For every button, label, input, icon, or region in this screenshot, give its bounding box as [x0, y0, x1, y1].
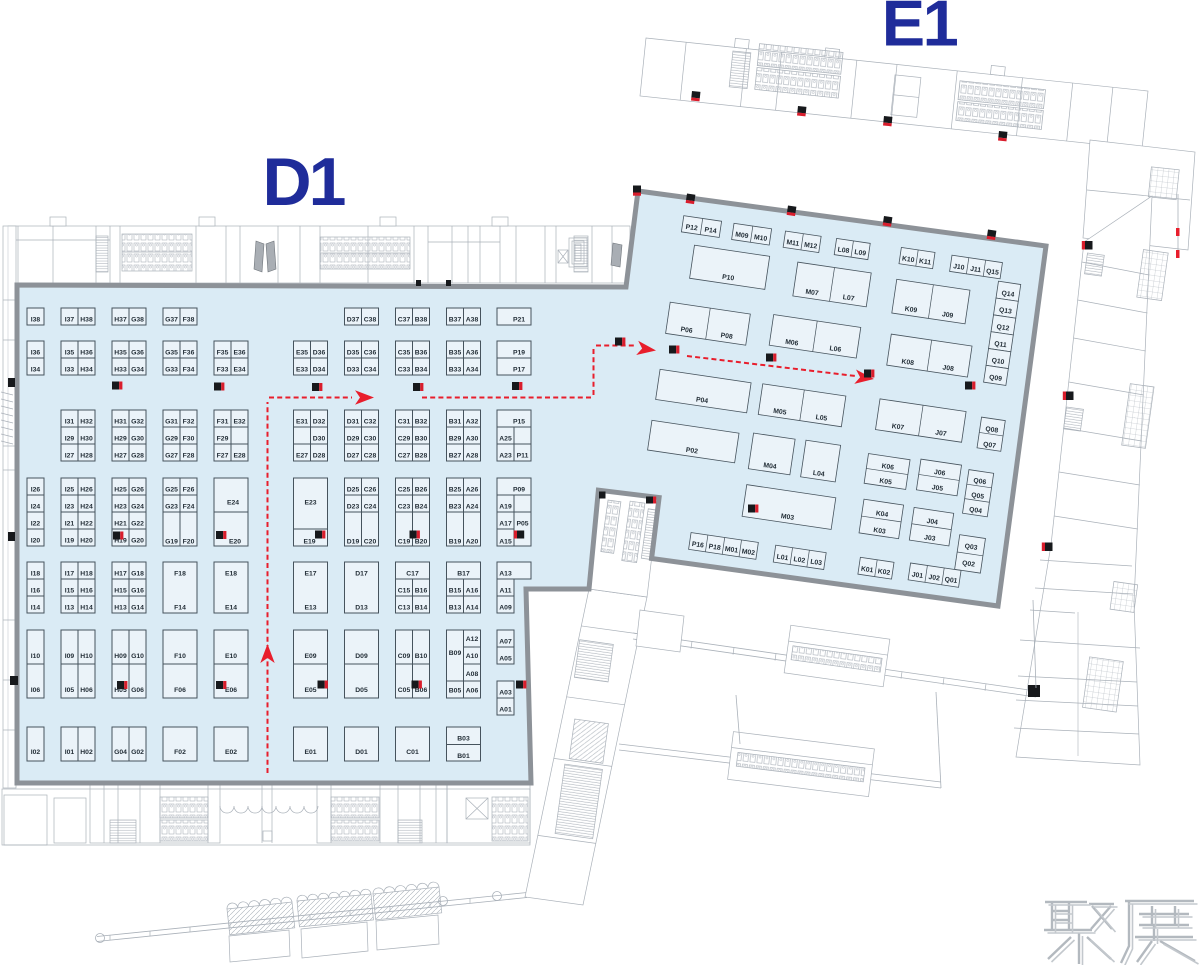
- svg-text:G24: G24: [131, 503, 144, 510]
- svg-text:A11: A11: [499, 587, 511, 594]
- svg-text:C36: C36: [364, 349, 377, 356]
- svg-text:F14: F14: [174, 604, 186, 611]
- svg-text:E23: E23: [304, 499, 316, 506]
- svg-text:D09: D09: [355, 653, 368, 660]
- svg-text:C19: C19: [398, 538, 411, 545]
- svg-text:G14: G14: [131, 604, 144, 611]
- svg-text:G36: G36: [131, 349, 144, 356]
- svg-text:C05: C05: [398, 687, 411, 694]
- svg-text:G16: G16: [131, 587, 144, 594]
- svg-text:H31: H31: [114, 418, 127, 425]
- svg-text:B17: B17: [457, 570, 470, 577]
- svg-text:I38: I38: [31, 316, 41, 323]
- svg-text:H32: H32: [80, 418, 93, 425]
- svg-text:A24: A24: [466, 503, 479, 510]
- svg-text:E19: E19: [303, 538, 315, 545]
- svg-text:E09: E09: [304, 653, 316, 660]
- svg-text:E06: E06: [225, 687, 237, 694]
- svg-text:B13: B13: [449, 604, 462, 611]
- svg-text:F31: F31: [217, 418, 229, 425]
- svg-text:C35: C35: [398, 349, 411, 356]
- svg-text:A28: A28: [466, 452, 479, 459]
- svg-text:H10: H10: [80, 653, 93, 660]
- svg-text:B38: B38: [415, 316, 428, 323]
- svg-text:H16: H16: [80, 587, 93, 594]
- svg-text:F24: F24: [183, 503, 195, 510]
- svg-text:H21: H21: [114, 520, 127, 527]
- svg-text:F29: F29: [217, 435, 229, 442]
- svg-text:G32: G32: [131, 418, 144, 425]
- svg-text:F28: F28: [183, 452, 195, 459]
- svg-text:B36: B36: [415, 349, 428, 356]
- svg-text:I18: I18: [31, 570, 41, 577]
- svg-text:E24: E24: [227, 499, 239, 506]
- svg-text:G37: G37: [165, 316, 178, 323]
- svg-text:B03: B03: [457, 736, 470, 743]
- svg-text:H02: H02: [80, 749, 93, 756]
- svg-text:G34: G34: [131, 366, 144, 373]
- svg-text:C26: C26: [364, 486, 377, 493]
- svg-text:I34: I34: [31, 366, 41, 373]
- svg-text:G25: G25: [165, 486, 178, 493]
- svg-text:H33: H33: [114, 366, 127, 373]
- svg-text:D13: D13: [355, 604, 368, 611]
- svg-text:A07: A07: [499, 638, 512, 645]
- svg-text:H20: H20: [80, 537, 93, 544]
- svg-text:B16: B16: [415, 587, 428, 594]
- svg-text:D35: D35: [347, 349, 360, 356]
- svg-text:G33: G33: [165, 366, 178, 373]
- svg-text:A14: A14: [466, 604, 479, 611]
- svg-text:C01: C01: [406, 749, 419, 756]
- svg-text:B01: B01: [457, 753, 470, 760]
- svg-text:H36: H36: [80, 349, 93, 356]
- svg-text:E18: E18: [225, 570, 237, 577]
- svg-text:I23: I23: [65, 503, 75, 510]
- svg-text:H18: H18: [80, 570, 93, 577]
- svg-text:G19: G19: [165, 538, 178, 545]
- svg-text:A25: A25: [499, 435, 512, 442]
- svg-text:P15: P15: [513, 418, 525, 425]
- svg-text:C33: C33: [398, 366, 411, 373]
- svg-text:E10: E10: [225, 653, 237, 660]
- svg-text:A16: A16: [466, 587, 479, 594]
- svg-text:F30: F30: [183, 435, 195, 442]
- svg-text:D1: D1: [263, 144, 345, 220]
- svg-text:E28: E28: [233, 452, 245, 459]
- svg-text:I37: I37: [65, 316, 75, 323]
- svg-text:E01: E01: [304, 749, 316, 756]
- svg-text:H23: H23: [114, 503, 127, 510]
- svg-text:C23: C23: [398, 503, 411, 510]
- svg-text:G20: G20: [131, 537, 144, 544]
- svg-text:G18: G18: [131, 570, 144, 577]
- svg-text:B23: B23: [449, 503, 462, 510]
- svg-text:H28: H28: [80, 452, 93, 459]
- svg-text:H30: H30: [80, 435, 93, 442]
- svg-text:P19: P19: [513, 349, 525, 356]
- svg-text:D01: D01: [355, 749, 368, 756]
- svg-text:E27: E27: [296, 452, 308, 459]
- svg-text:D30: D30: [313, 435, 326, 442]
- svg-text:D29: D29: [347, 435, 360, 442]
- svg-text:A15: A15: [499, 538, 512, 545]
- svg-text:A05: A05: [499, 655, 512, 662]
- svg-text:B27: B27: [449, 452, 462, 459]
- svg-text:H29: H29: [114, 435, 127, 442]
- svg-text:H24: H24: [80, 503, 93, 510]
- svg-text:A19: A19: [499, 503, 512, 510]
- svg-text:B25: B25: [449, 486, 462, 493]
- svg-text:D05: D05: [355, 687, 368, 694]
- svg-text:P11: P11: [517, 452, 529, 459]
- svg-text:I14: I14: [31, 604, 41, 611]
- svg-text:C38: C38: [364, 316, 377, 323]
- svg-text:B30: B30: [415, 435, 428, 442]
- svg-text:G38: G38: [131, 316, 144, 323]
- svg-text:B09: B09: [449, 650, 462, 657]
- svg-text:D36: D36: [313, 349, 326, 356]
- svg-text:A03: A03: [499, 689, 512, 696]
- svg-text:H15: H15: [114, 587, 127, 594]
- svg-text:H14: H14: [80, 604, 93, 611]
- svg-text:F10: F10: [174, 653, 186, 660]
- svg-text:D33: D33: [347, 366, 360, 373]
- svg-text:G28: G28: [131, 452, 144, 459]
- svg-text:A13: A13: [499, 570, 512, 577]
- svg-text:C13: C13: [398, 604, 411, 611]
- svg-text:B05: B05: [449, 688, 462, 695]
- svg-text:I21: I21: [65, 520, 75, 527]
- svg-text:H09: H09: [114, 653, 127, 660]
- svg-text:B35: B35: [449, 349, 462, 356]
- svg-text:A10: A10: [466, 653, 479, 660]
- svg-text:P09: P09: [513, 486, 525, 493]
- svg-text:D25: D25: [347, 486, 360, 493]
- svg-text:E17: E17: [304, 570, 316, 577]
- svg-text:C17: C17: [406, 570, 419, 577]
- svg-text:A34: A34: [466, 366, 479, 373]
- svg-text:H27: H27: [114, 452, 127, 459]
- svg-text:I10: I10: [31, 653, 41, 660]
- svg-text:F20: F20: [183, 538, 195, 545]
- svg-text:B34: B34: [415, 366, 428, 373]
- svg-text:I16: I16: [31, 587, 41, 594]
- svg-text:B24: B24: [415, 503, 428, 510]
- svg-text:B20: B20: [415, 538, 428, 545]
- svg-text:H25: H25: [114, 486, 127, 493]
- svg-text:I36: I36: [31, 349, 41, 356]
- svg-text:A23: A23: [499, 452, 512, 459]
- svg-text:I13: I13: [65, 604, 75, 611]
- svg-text:I20: I20: [31, 537, 41, 544]
- svg-text:A30: A30: [466, 435, 479, 442]
- svg-text:D27: D27: [347, 452, 360, 459]
- svg-text:H06: H06: [80, 687, 93, 694]
- svg-text:B33: B33: [449, 366, 462, 373]
- svg-text:B15: B15: [449, 587, 462, 594]
- svg-text:E05: E05: [304, 687, 316, 694]
- svg-text:G04: G04: [114, 749, 127, 756]
- svg-text:G23: G23: [165, 503, 178, 510]
- svg-text:I24: I24: [31, 503, 41, 510]
- svg-text:I09: I09: [65, 653, 75, 660]
- svg-text:H34: H34: [80, 366, 93, 373]
- svg-text:F36: F36: [183, 349, 195, 356]
- svg-text:G29: G29: [165, 435, 178, 442]
- svg-text:A09: A09: [499, 604, 512, 611]
- svg-text:C31: C31: [398, 418, 411, 425]
- svg-text:G27: G27: [165, 452, 178, 459]
- svg-text:C09: C09: [398, 653, 411, 660]
- svg-text:G35: G35: [165, 349, 178, 356]
- svg-text:C30: C30: [364, 435, 377, 442]
- svg-text:E34: E34: [233, 366, 245, 373]
- svg-text:D31: D31: [347, 418, 360, 425]
- svg-text:B29: B29: [449, 435, 462, 442]
- svg-text:E1: E1: [882, 0, 958, 60]
- svg-text:I26: I26: [31, 486, 41, 493]
- svg-text:F34: F34: [183, 366, 195, 373]
- svg-text:H37: H37: [114, 316, 127, 323]
- svg-text:B32: B32: [415, 418, 428, 425]
- svg-text:E35: E35: [296, 349, 308, 356]
- svg-text:I01: I01: [65, 749, 75, 756]
- svg-text:B14: B14: [415, 604, 428, 611]
- svg-text:G06: G06: [131, 687, 144, 694]
- svg-text:D23: D23: [347, 503, 360, 510]
- svg-text:A26: A26: [466, 486, 479, 493]
- svg-text:G10: G10: [131, 653, 144, 660]
- svg-text:H22: H22: [80, 520, 93, 527]
- svg-text:G30: G30: [131, 435, 144, 442]
- svg-text:B19: B19: [449, 538, 462, 545]
- svg-text:H13: H13: [114, 604, 127, 611]
- svg-text:A17: A17: [499, 520, 512, 527]
- svg-text:F26: F26: [183, 486, 195, 493]
- svg-text:C27: C27: [398, 452, 411, 459]
- svg-text:I31: I31: [65, 418, 75, 425]
- svg-text:A06: A06: [466, 688, 479, 695]
- svg-text:F02: F02: [174, 749, 186, 756]
- svg-text:E32: E32: [233, 418, 245, 425]
- svg-text:D34: D34: [313, 366, 326, 373]
- svg-text:B37: B37: [449, 316, 462, 323]
- svg-text:I15: I15: [65, 587, 75, 594]
- svg-text:I25: I25: [65, 486, 75, 493]
- svg-text:B10: B10: [415, 653, 428, 660]
- svg-text:E36: E36: [233, 349, 245, 356]
- svg-text:C37: C37: [398, 316, 411, 323]
- svg-text:E20: E20: [229, 538, 241, 545]
- svg-text:I35: I35: [65, 349, 75, 356]
- svg-text:H35: H35: [114, 349, 127, 356]
- svg-text:G22: G22: [131, 520, 144, 527]
- svg-text:I02: I02: [31, 749, 41, 756]
- svg-text:D28: D28: [313, 452, 326, 459]
- svg-text:B28: B28: [415, 452, 428, 459]
- svg-text:H26: H26: [80, 486, 93, 493]
- svg-text:B31: B31: [449, 418, 462, 425]
- svg-text:I06: I06: [31, 687, 41, 694]
- svg-text:D17: D17: [355, 570, 368, 577]
- svg-text:A32: A32: [466, 418, 479, 425]
- svg-text:A20: A20: [466, 538, 479, 545]
- svg-text:I29: I29: [65, 435, 75, 442]
- svg-text:A38: A38: [466, 316, 479, 323]
- svg-text:I27: I27: [65, 452, 75, 459]
- svg-text:G02: G02: [131, 749, 144, 756]
- svg-text:C32: C32: [364, 418, 377, 425]
- svg-text:E14: E14: [225, 604, 237, 611]
- svg-text:H38: H38: [80, 316, 93, 323]
- svg-text:I22: I22: [31, 520, 41, 527]
- svg-text:C15: C15: [398, 587, 411, 594]
- svg-text:P05: P05: [516, 520, 528, 527]
- svg-text:B26: B26: [415, 486, 428, 493]
- svg-text:C25: C25: [398, 486, 411, 493]
- svg-text:P21: P21: [513, 316, 525, 323]
- svg-text:G26: G26: [131, 486, 144, 493]
- svg-text:D32: D32: [313, 418, 326, 425]
- svg-text:C24: C24: [364, 503, 377, 510]
- svg-text:F32: F32: [183, 418, 195, 425]
- svg-text:I17: I17: [65, 570, 75, 577]
- svg-text:F33: F33: [217, 366, 229, 373]
- svg-text:E31: E31: [296, 418, 308, 425]
- svg-text:E13: E13: [304, 604, 316, 611]
- svg-text:F38: F38: [183, 316, 195, 323]
- svg-text:A36: A36: [466, 349, 479, 356]
- svg-text:G31: G31: [165, 418, 178, 425]
- svg-text:F27: F27: [217, 452, 229, 459]
- svg-text:E33: E33: [296, 366, 308, 373]
- svg-text:C29: C29: [398, 435, 411, 442]
- svg-text:I19: I19: [65, 537, 75, 544]
- svg-text:D37: D37: [347, 316, 360, 323]
- svg-text:D19: D19: [347, 538, 360, 545]
- svg-text:F18: F18: [174, 570, 186, 577]
- svg-text:I33: I33: [65, 366, 75, 373]
- svg-text:F35: F35: [217, 349, 229, 356]
- svg-text:I05: I05: [65, 687, 75, 694]
- svg-text:C34: C34: [364, 366, 377, 373]
- svg-text:A01: A01: [499, 706, 512, 713]
- svg-text:A12: A12: [466, 636, 479, 643]
- svg-text:F06: F06: [174, 687, 186, 694]
- svg-text:P17: P17: [513, 366, 525, 373]
- svg-text:C20: C20: [364, 538, 377, 545]
- svg-text:C28: C28: [364, 452, 377, 459]
- svg-text:H17: H17: [114, 570, 127, 577]
- svg-text:A08: A08: [466, 671, 479, 678]
- svg-text:E02: E02: [225, 749, 237, 756]
